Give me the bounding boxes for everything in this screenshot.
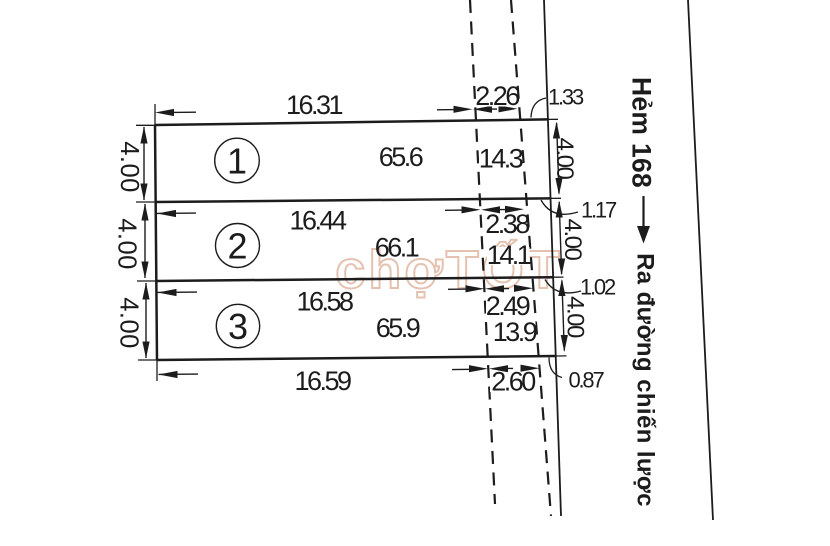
svg-text:14.1: 14.1: [487, 240, 531, 270]
svg-text:Hẻm 168: Hẻm 168: [626, 77, 656, 188]
svg-text:1.33: 1.33: [548, 85, 584, 110]
svg-text:4.00: 4.00: [114, 297, 142, 349]
svg-text:Ra đường chiến lược: Ra đường chiến lược: [631, 253, 658, 507]
svg-text:2.60: 2.60: [491, 367, 535, 397]
svg-text:3: 3: [228, 306, 248, 347]
svg-text:4.00: 4.00: [559, 219, 586, 261]
svg-text:16.58: 16.58: [296, 287, 353, 317]
svg-text:16.59: 16.59: [294, 366, 351, 396]
svg-text:4.00: 4.00: [115, 141, 143, 193]
svg-text:16.31: 16.31: [286, 90, 343, 120]
svg-text:1.02: 1.02: [580, 275, 616, 300]
svg-text:4.00: 4.00: [112, 218, 140, 270]
svg-text:0.87: 0.87: [568, 368, 604, 393]
svg-text:4.00: 4.00: [561, 296, 588, 338]
svg-text:14.3: 14.3: [479, 144, 523, 174]
svg-text:66.1: 66.1: [375, 233, 419, 263]
svg-text:2: 2: [227, 225, 247, 266]
svg-text:4.00: 4.00: [551, 138, 578, 180]
svg-text:16.44: 16.44: [289, 206, 347, 236]
svg-text:65.6: 65.6: [379, 142, 423, 172]
svg-text:65.9: 65.9: [376, 313, 420, 343]
svg-text:1.17: 1.17: [581, 198, 617, 223]
svg-text:2.38: 2.38: [485, 209, 529, 239]
svg-text:2.26: 2.26: [475, 81, 519, 111]
svg-text:13.9: 13.9: [493, 317, 537, 347]
svg-text:1: 1: [227, 140, 247, 181]
